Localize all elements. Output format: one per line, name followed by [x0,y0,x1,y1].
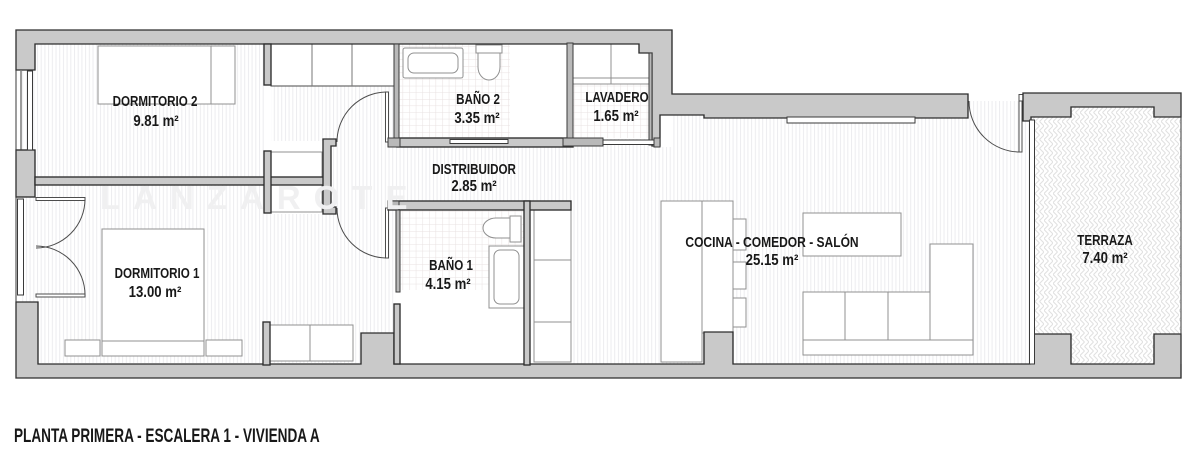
svg-text:2.85 m²: 2.85 m² [451,178,497,195]
svg-text:1.65 m²: 1.65 m² [593,108,639,125]
svg-text:BAÑO 1: BAÑO 1 [429,257,473,274]
svg-text:3.35 m²: 3.35 m² [454,110,500,127]
svg-text:DISTRIBUIDOR: DISTRIBUIDOR [432,161,516,178]
svg-text:LAVADERO: LAVADERO [585,89,648,106]
svg-text:LANZAROTE: LANZAROTE [100,179,420,216]
svg-text:COCINA - COMEDOR - SALÓN: COCINA - COMEDOR - SALÓN [685,234,858,250]
svg-text:DORMITORIO 1: DORMITORIO 1 [115,265,200,282]
svg-text:4.15 m²: 4.15 m² [425,276,471,293]
svg-text:7.40 m²: 7.40 m² [1082,250,1128,267]
svg-text:9.81 m²: 9.81 m² [133,113,179,130]
svg-text:25.15 m²: 25.15 m² [746,252,799,269]
svg-text:13.00 m²: 13.00 m² [129,284,182,301]
svg-text:PLANTA PRIMERA - ESCALERA 1 -: PLANTA PRIMERA - ESCALERA 1 - VIVIENDA A [14,426,320,447]
svg-text:BAÑO 2: BAÑO 2 [456,91,500,108]
svg-text:TERRAZA: TERRAZA [1077,232,1133,249]
svg-text:DORMITORIO 2: DORMITORIO 2 [113,93,198,110]
